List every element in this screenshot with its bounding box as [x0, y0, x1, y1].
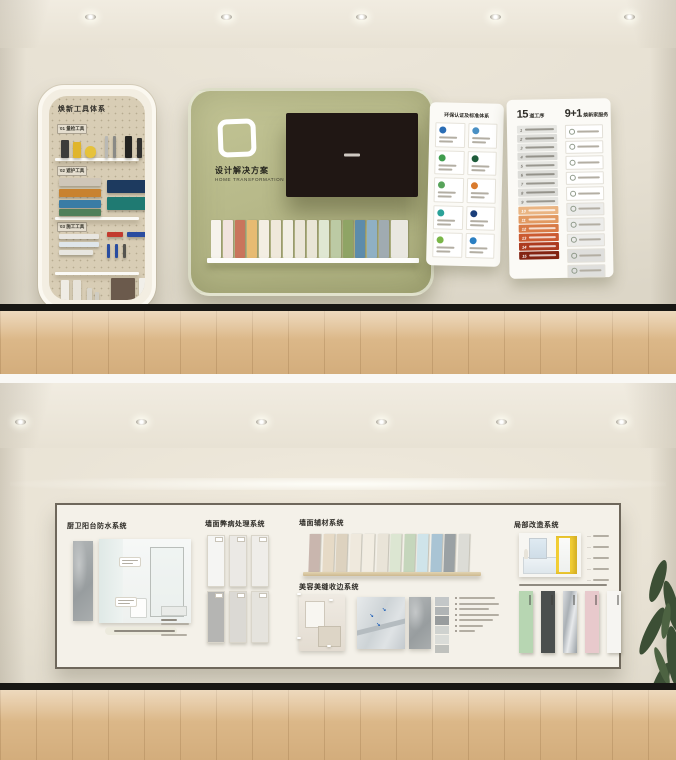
- tool-item: [59, 234, 99, 239]
- bathroom-wall: [99, 539, 123, 623]
- tool-item: [95, 292, 99, 300]
- tool-item: [107, 197, 145, 210]
- tick-icon: —: [587, 544, 591, 549]
- service-row: [567, 217, 605, 231]
- service-icon: [571, 221, 577, 227]
- tile-edge-closeup-photo: ↘ ↘ ↘: [357, 597, 405, 649]
- step-number: 4: [520, 154, 522, 159]
- certification-grid: [432, 122, 497, 258]
- cert-text: [472, 141, 486, 143]
- cert-text: [436, 251, 450, 253]
- arrow-annotation: ↘: [376, 622, 380, 628]
- defect-sample-board: [207, 591, 225, 643]
- note-line: [161, 630, 175, 632]
- tool-item: [107, 232, 123, 237]
- material-sample: [362, 534, 374, 572]
- step-number: 15: [522, 253, 527, 258]
- cert-text: [470, 192, 488, 194]
- callout-text: [118, 600, 134, 602]
- color-sample: [259, 220, 269, 258]
- section-title: 局部改造系统: [514, 520, 559, 530]
- cert-text: [470, 220, 488, 222]
- material-sample: [349, 534, 361, 572]
- color-sample: [367, 220, 377, 258]
- step-number: 1: [520, 127, 522, 132]
- certification-logo-icon: [470, 182, 477, 189]
- spotlight: [136, 419, 147, 425]
- cert-text: [472, 137, 490, 139]
- step-number: 11: [521, 217, 525, 222]
- process-step-row: 13: [519, 233, 559, 242]
- process-step-row: 1: [517, 125, 557, 134]
- shelf: [55, 272, 139, 275]
- baseboard: [0, 683, 676, 690]
- spec-item: —: [587, 533, 611, 538]
- callout-bubble: [297, 593, 301, 595]
- color-sample: [319, 220, 329, 258]
- certification-title: 环保认证及标准体系: [430, 111, 504, 120]
- grout-color-sample: [435, 626, 449, 635]
- callout-label: [119, 557, 141, 567]
- service-row: [566, 171, 604, 185]
- certification-card: [432, 233, 462, 258]
- list-text: [459, 603, 499, 605]
- step-number: 8: [521, 190, 523, 195]
- step-text: [526, 173, 555, 175]
- step-number: 7: [521, 181, 523, 186]
- service-text: [578, 208, 600, 210]
- service-text: [578, 161, 600, 163]
- color-sample: [379, 220, 389, 258]
- section-title: 墙面弊病处理系统: [205, 519, 265, 529]
- service-count: 9+1: [565, 108, 582, 120]
- pegboard: 焕新工具体系 01 量检工具 02 遮护工具 03 施工工具: [49, 96, 145, 300]
- service-icon: [571, 237, 577, 243]
- cert-text: [471, 165, 489, 167]
- bathroom-photo: [99, 539, 191, 623]
- callout-bubble: [329, 599, 333, 601]
- step-text: [529, 218, 556, 220]
- color-sample: [211, 220, 221, 258]
- defect-sample-board: [229, 535, 247, 587]
- service-row: [565, 140, 603, 154]
- step-number: 5: [521, 163, 523, 168]
- note-text-block: [161, 619, 191, 636]
- cove-light: [10, 478, 666, 490]
- tile-edge: [357, 617, 405, 637]
- service-title: 9+1 焕新家服务: [565, 107, 609, 120]
- spec-item: —: [587, 555, 611, 560]
- color-sample: [355, 220, 365, 258]
- shelf: [55, 158, 139, 161]
- service-text: [578, 177, 600, 179]
- list-text: [459, 614, 499, 616]
- spec-text: [593, 557, 609, 559]
- spec-item: —: [587, 544, 611, 549]
- cert-text: [439, 140, 453, 142]
- stone-sample-strip: [73, 541, 93, 621]
- cert-text: [437, 219, 455, 221]
- material-sample-row: [309, 534, 469, 572]
- service-text: [577, 146, 599, 148]
- finish-strip-sample: [541, 591, 555, 653]
- certification-card: [467, 151, 497, 176]
- system-display-board: 厨卫阳台防水系统 墙: [55, 503, 621, 669]
- certification-card: [465, 206, 495, 231]
- tool-item: [85, 146, 96, 158]
- certification-logo-icon: [471, 155, 478, 162]
- grout-color-sample: [435, 635, 449, 644]
- process-step-row: 14: [519, 242, 559, 251]
- certification-logo-icon: [439, 154, 446, 161]
- cert-text: [439, 136, 457, 138]
- sample-label-chip: [259, 593, 267, 598]
- spec-text: [593, 568, 609, 570]
- defect-sample-board: [251, 591, 269, 643]
- material-sample: [443, 534, 455, 572]
- callout-bubble: [297, 637, 301, 639]
- cabinet: [523, 557, 557, 574]
- callout-text: [122, 560, 138, 562]
- note-line: [161, 634, 187, 636]
- list-item: [455, 619, 499, 621]
- bullet-icon: [455, 597, 457, 599]
- service-row: [565, 155, 603, 169]
- showroom-render: 焕新工具体系 01 量检工具 02 遮护工具 03 施工工具 设计解决方案 HO…: [0, 0, 676, 760]
- list-text: [459, 608, 489, 610]
- step-number: 14: [522, 244, 527, 249]
- service-icon: [570, 190, 576, 196]
- service-text: [578, 192, 600, 194]
- material-sample: [389, 534, 401, 572]
- step-text: [529, 227, 556, 229]
- certification-card: [466, 178, 496, 203]
- spotlight: [496, 419, 507, 425]
- tool-item: [61, 280, 69, 300]
- list-item: [455, 625, 499, 627]
- cert-text: [470, 196, 484, 198]
- process-step-row: 4: [517, 152, 557, 161]
- tick-icon: —: [587, 577, 591, 582]
- section-title: 墙面辅材系统: [299, 518, 344, 528]
- sample-label-chip: [237, 593, 245, 598]
- certification-card: [434, 150, 464, 175]
- spotlight: [376, 419, 387, 425]
- room-photo: [299, 595, 345, 651]
- cert-text: [471, 169, 485, 171]
- spotlight: [356, 14, 367, 20]
- material-sample: [308, 534, 320, 572]
- process-count: 15: [517, 109, 528, 121]
- list-item: [455, 603, 499, 605]
- spec-item: —: [587, 577, 611, 582]
- bullet-icon: [455, 619, 457, 621]
- service-row: [567, 264, 605, 278]
- brand-logo-icon: [217, 118, 256, 157]
- material-shelf: [303, 572, 481, 576]
- tool-item: [113, 136, 116, 158]
- defect-sample-board: [207, 535, 225, 587]
- tool-item: [59, 242, 99, 247]
- process-step-row: 8: [518, 188, 558, 197]
- tool-item: [115, 244, 118, 258]
- tool-panel-title: 焕新工具体系: [58, 104, 106, 114]
- service-row: [567, 248, 605, 262]
- list-item: [455, 597, 499, 599]
- process-step-row: 5: [518, 161, 558, 170]
- tool-item: [59, 189, 101, 197]
- tool-system-panel: 焕新工具体系 01 量检工具 02 遮护工具 03 施工工具: [38, 85, 156, 311]
- service-text: [579, 239, 601, 241]
- process-step-list: 123456789101112131415: [517, 125, 559, 260]
- shelf: [55, 217, 139, 220]
- certification-logo-icon: [438, 182, 445, 189]
- ceiling: [0, 0, 676, 48]
- step-text: [526, 182, 555, 184]
- certification-logo-icon: [439, 126, 446, 133]
- service-label: 焕新家服务: [583, 112, 608, 118]
- grout-feature-list: [455, 597, 499, 632]
- service-row: [565, 124, 603, 138]
- certification-card: [465, 233, 495, 258]
- tool-item: [111, 278, 135, 300]
- color-sample: [235, 220, 245, 258]
- service-icon: [571, 252, 577, 258]
- defect-sample-board: [251, 535, 269, 587]
- sample-label-chip: [215, 537, 223, 542]
- note-line: [161, 619, 177, 621]
- material-sample: [457, 534, 469, 572]
- service-text: [577, 130, 599, 132]
- bullet-icon: [455, 608, 457, 610]
- certification-logo-icon: [437, 237, 444, 244]
- tool-item: [125, 136, 132, 158]
- shelf: [207, 258, 419, 263]
- tick-icon: —: [587, 533, 591, 538]
- strip-label: [573, 595, 575, 605]
- room-cabinet: [318, 626, 341, 647]
- tool-item: [59, 250, 93, 255]
- list-text: [459, 619, 493, 621]
- step-text: [526, 191, 555, 193]
- service-icon: [569, 159, 575, 165]
- cert-text: [437, 223, 451, 225]
- tool-item: [137, 138, 142, 158]
- tool-item: [73, 280, 81, 300]
- tool-section-label: 03 施工工具: [57, 222, 87, 232]
- finish-strip-sample: [585, 591, 599, 653]
- step-text: [525, 128, 554, 130]
- process-step-row: 2: [517, 134, 557, 143]
- renovation-spec-list: —————: [587, 533, 611, 582]
- wood-floor: [0, 311, 676, 375]
- step-number: 10: [521, 208, 526, 213]
- tool-item: [107, 244, 110, 258]
- step-number: 3: [520, 145, 522, 150]
- tv-screen: [286, 113, 418, 197]
- grout-color-column: [435, 597, 449, 653]
- tool-item: [61, 140, 69, 158]
- sample-label-chip: [237, 537, 245, 542]
- caption-line: [519, 584, 611, 586]
- step-text: [529, 209, 556, 211]
- process-step-row: 6: [518, 170, 558, 179]
- tool-section-label: 02 遮护工具: [57, 166, 87, 176]
- process-label: 道工序: [529, 113, 544, 119]
- process-title: 15 道工序: [517, 108, 545, 120]
- spotlight: [490, 14, 501, 20]
- grout-color-sample: [435, 607, 449, 616]
- certification-card: [467, 123, 497, 148]
- section-title: 厨卫阳台防水系统: [67, 521, 127, 531]
- sample-label-chip: [215, 593, 223, 598]
- strip-label: [595, 595, 597, 605]
- grout-color-sample: [435, 645, 449, 654]
- service-text: [579, 254, 601, 256]
- strip-label: [551, 595, 553, 605]
- tool-item: [139, 278, 145, 300]
- certification-logo-icon: [469, 238, 476, 245]
- process-step-row: 3: [517, 143, 557, 152]
- color-sample: [283, 220, 293, 258]
- arrow-annotation: ↘: [382, 607, 386, 613]
- callout-bubble: [327, 645, 331, 647]
- step-text: [526, 200, 555, 202]
- certification-logo-icon: [470, 210, 477, 217]
- callout-text: [122, 563, 133, 565]
- service-icon: [569, 144, 575, 150]
- color-sample: [391, 220, 408, 258]
- process-step-row: 15: [519, 251, 559, 260]
- caption-text: [519, 584, 607, 586]
- tool-item: [59, 200, 101, 208]
- bullet-icon: [455, 625, 457, 627]
- service-icon: [570, 175, 576, 181]
- wall-shading: [650, 48, 676, 304]
- tick-icon: —: [587, 566, 591, 571]
- spotlight: [15, 419, 26, 425]
- cert-text: [438, 168, 452, 170]
- tool-item: [73, 142, 81, 158]
- color-sample-shelf: [211, 218, 415, 258]
- callout-label: [115, 597, 137, 607]
- tool-item: [127, 232, 145, 237]
- step-text: [530, 254, 557, 256]
- spotlight: [256, 419, 267, 425]
- scene-bottom-showroom: 厨卫阳台防水系统 墙: [0, 383, 676, 760]
- finish-strip-samples: [519, 591, 621, 653]
- spec-item: —: [587, 566, 611, 571]
- certification-panel: 环保认证及标准体系: [426, 102, 504, 267]
- process-step-row: 11: [518, 215, 558, 224]
- service-text: [579, 270, 601, 272]
- process-step-row: 10: [518, 206, 558, 215]
- certification-card: [433, 205, 463, 230]
- list-item: [455, 608, 499, 610]
- step-text: [526, 164, 555, 166]
- step-number: 2: [520, 136, 522, 141]
- tick-icon: —: [587, 555, 591, 560]
- service-row: [566, 202, 604, 216]
- list-item: [455, 630, 499, 632]
- finish-strip-sample: [563, 591, 577, 653]
- step-text: [529, 236, 556, 238]
- material-sample: [335, 534, 347, 572]
- ceiling: [0, 383, 676, 448]
- bullet-icon: [455, 614, 457, 616]
- process-step-row: 9: [518, 197, 558, 206]
- tv-screen-text: [344, 154, 360, 157]
- panel-subtitle: HOME TRANSFORMATION: [215, 177, 295, 183]
- process-step-row: 7: [518, 179, 558, 188]
- tool-section-label: 01 量检工具: [57, 124, 87, 134]
- wood-floor: [0, 690, 676, 760]
- step-text: [529, 245, 556, 247]
- service-icon: [571, 268, 577, 274]
- material-sample: [376, 534, 388, 572]
- step-text: [525, 137, 554, 139]
- step-number: 12: [522, 226, 527, 231]
- design-solution-panel: 设计解决方案 HOME TRANSFORMATION: [188, 88, 434, 296]
- tool-item: [87, 288, 92, 300]
- service-icon: [569, 128, 575, 134]
- color-sample: [295, 220, 305, 258]
- certification-card: [435, 122, 465, 147]
- cert-text: [469, 248, 487, 250]
- panel-title: 设计解决方案: [215, 165, 269, 176]
- material-sample: [430, 534, 442, 572]
- service-list: [565, 124, 606, 278]
- sample-label-chip: [259, 537, 267, 542]
- list-text: [459, 597, 495, 599]
- cert-text: [438, 192, 456, 194]
- color-sample: [331, 220, 341, 258]
- process-step-row: 12: [519, 224, 559, 233]
- list-text: [459, 625, 483, 627]
- cert-text: [469, 252, 483, 254]
- cert-text: [436, 247, 454, 249]
- color-sample: [343, 220, 353, 258]
- bullet-icon: [455, 630, 457, 632]
- step-text: [526, 146, 555, 148]
- caption-text: [114, 630, 168, 632]
- cert-text: [469, 224, 483, 226]
- service-text: [579, 223, 601, 225]
- step-number: 6: [521, 172, 523, 177]
- baseboard: [0, 304, 676, 311]
- step-text: [526, 155, 555, 157]
- spotlight: [221, 14, 232, 20]
- arrow-annotation: ↘: [369, 613, 373, 619]
- list-text: [459, 630, 475, 632]
- list-item: [455, 614, 499, 616]
- cert-text: [438, 196, 452, 198]
- defect-sample-boards: [207, 535, 269, 643]
- bullet-icon: [455, 603, 457, 605]
- spotlight: [624, 14, 635, 20]
- service-icon: [570, 206, 576, 212]
- step-number: 13: [522, 235, 527, 240]
- defect-sample-board: [229, 591, 247, 643]
- tool-item: [59, 209, 101, 216]
- service-row: [567, 233, 605, 247]
- step-number: 9: [521, 199, 523, 204]
- washbasin: [161, 606, 187, 616]
- grout-texture-photo: [409, 597, 431, 649]
- note-line: [161, 623, 189, 625]
- wall-shading: [0, 48, 26, 304]
- color-sample: [223, 220, 233, 258]
